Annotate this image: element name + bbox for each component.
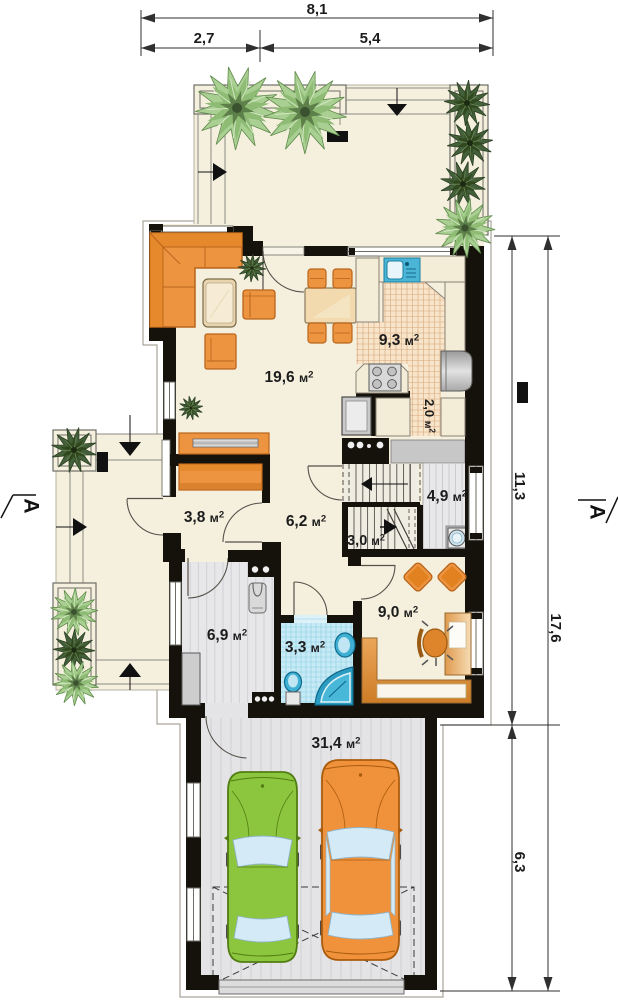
svg-text:4,9 м2: 4,9 м2 — [427, 488, 467, 505]
svg-text:6,2 м2: 6,2 м2 — [286, 513, 326, 530]
svg-text:9,0 м2: 9,0 м2 — [378, 604, 418, 621]
svg-text:19,6 м2: 19,6 м2 — [265, 369, 314, 386]
svg-text:8,1: 8,1 — [307, 1, 328, 18]
svg-text:6,3: 6,3 — [511, 852, 528, 873]
svg-text:31,4 м2: 31,4 м2 — [312, 735, 361, 752]
svg-text:3,8 м2: 3,8 м2 — [184, 509, 224, 526]
svg-text:3,0 м2: 3,0 м2 — [347, 533, 385, 550]
svg-text:5,4: 5,4 — [360, 30, 382, 47]
svg-text:9,3 м2: 9,3 м2 — [379, 332, 419, 349]
svg-text:2,7: 2,7 — [194, 30, 215, 47]
svg-text:3,3 м2: 3,3 м2 — [285, 639, 325, 656]
svg-text:17,6: 17,6 — [547, 613, 564, 642]
svg-text:11,3: 11,3 — [511, 472, 528, 500]
svg-text:A: A — [585, 504, 608, 519]
svg-text:6,9 м2: 6,9 м2 — [207, 627, 247, 644]
svg-text:2,0 м2: 2,0 м2 — [422, 399, 437, 433]
svg-text:A: A — [19, 498, 42, 513]
